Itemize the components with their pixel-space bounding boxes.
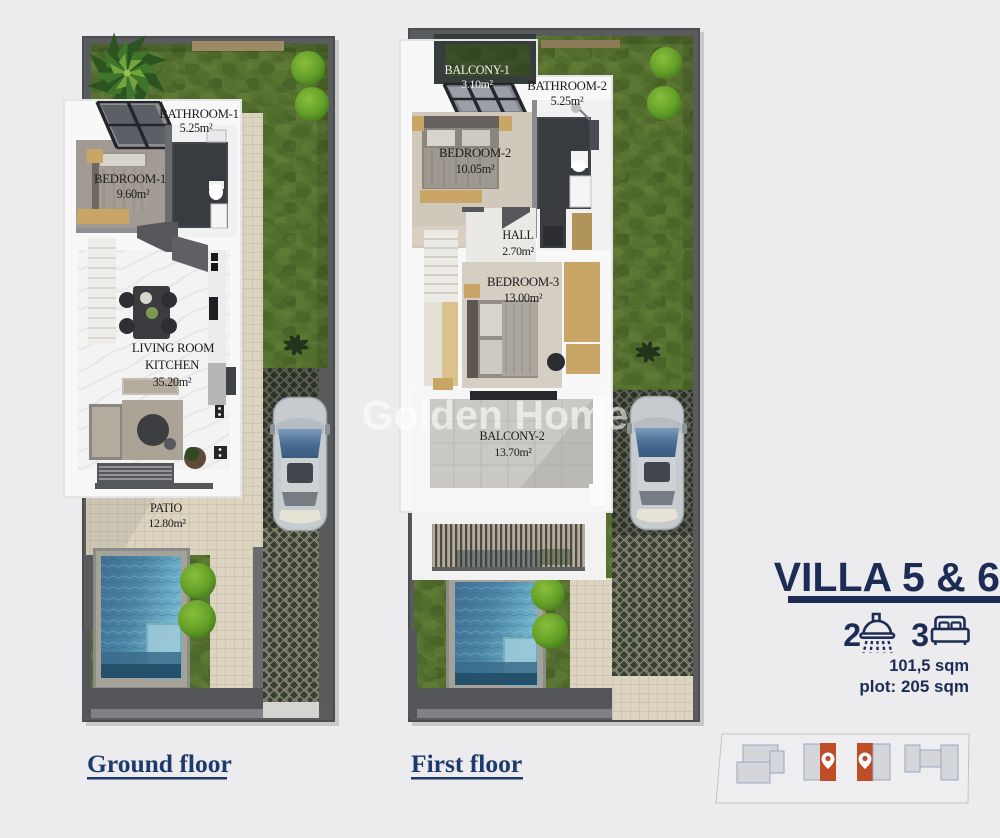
svg-text:5.25m²: 5.25m² [551,94,584,108]
svg-text:KITCHEN: KITCHEN [145,358,199,372]
svg-text:BATHROOM-2: BATHROOM-2 [527,79,606,93]
svg-text:101,5 sqm: 101,5 sqm [889,657,969,675]
svg-text:VILLA 5 & 6: VILLA 5 & 6 [774,554,1000,600]
svg-text:9.60m²: 9.60m² [117,187,150,201]
svg-text:12.80m²: 12.80m² [148,516,186,530]
svg-text:BATHROOM-1: BATHROOM-1 [159,107,238,121]
svg-text:HALL: HALL [502,228,533,242]
svg-text:13.70m²: 13.70m² [494,445,532,459]
svg-text:3.10m²: 3.10m² [461,77,493,91]
svg-text:3: 3 [911,617,929,653]
svg-text:plot: 205 sqm: plot: 205 sqm [859,677,969,696]
svg-text:BEDROOM-3: BEDROOM-3 [487,275,559,289]
svg-text:Golden Home: Golden Home [362,392,629,438]
svg-text:13.00m²: 13.00m² [504,291,543,305]
svg-text:2: 2 [843,617,861,653]
svg-text:10.05m²: 10.05m² [456,162,495,176]
svg-text:PATIO: PATIO [150,501,182,515]
svg-text:5.25m²: 5.25m² [180,121,213,135]
svg-text:2.70m²: 2.70m² [502,244,534,258]
svg-text:Ground floor: Ground floor [87,749,232,778]
svg-text:BEDROOM-1: BEDROOM-1 [94,172,166,186]
svg-text:BEDROOM-2: BEDROOM-2 [439,146,511,160]
svg-text:BALCONY-1: BALCONY-1 [444,63,509,77]
svg-text:LIVING ROOM: LIVING ROOM [132,341,214,355]
svg-text:First floor: First floor [411,749,522,778]
svg-text:35.20m²: 35.20m² [153,375,192,389]
